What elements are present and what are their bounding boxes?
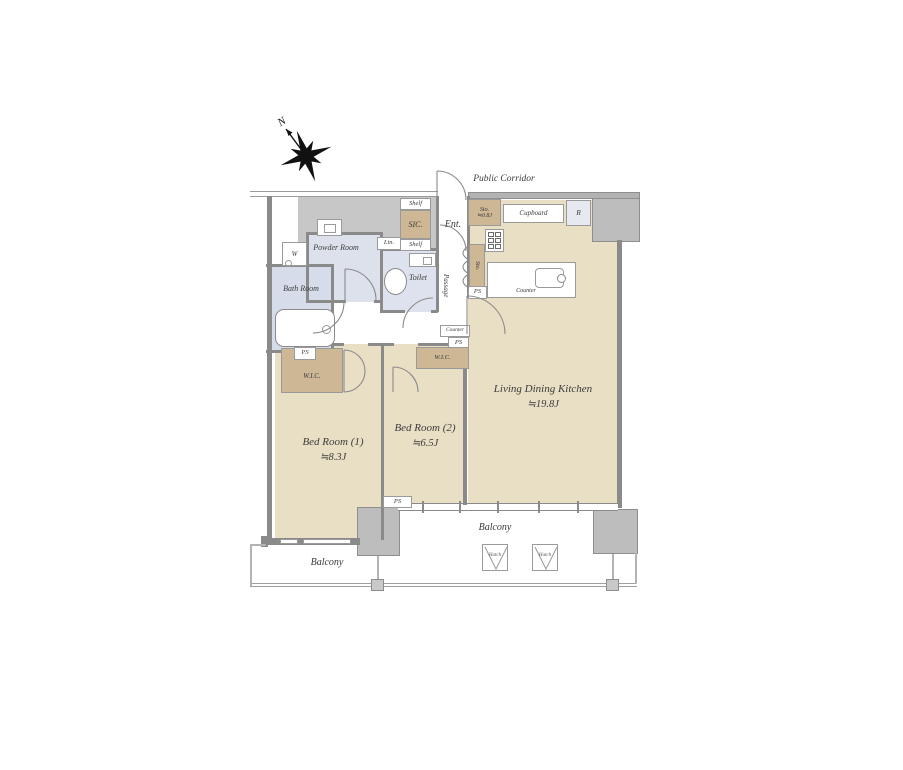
refrigerator-label: R — [576, 209, 581, 217]
bedroom1-name: Bed Room (1) — [283, 436, 383, 449]
linen-box: Lin. — [377, 237, 401, 250]
east-wall — [617, 240, 622, 508]
sto-entry-box: Sto. ≒0.8J — [468, 199, 501, 226]
compass-arrowhead — [286, 129, 293, 136]
stove-icon — [485, 229, 504, 252]
sto-entry-size: ≒0.8J — [477, 213, 492, 219]
entrance-label: Ent. — [437, 219, 469, 231]
bathtub-drain — [322, 325, 331, 334]
stove-burner-cell — [488, 244, 494, 249]
wic2-label: W.I.C. — [434, 355, 450, 362]
evacuation-hatch: Hatch — [482, 544, 508, 571]
west-wall — [267, 196, 272, 544]
rail-connector — [371, 579, 384, 591]
faucet-icon — [557, 274, 566, 283]
corridor-wall — [250, 191, 438, 197]
vanity-unit — [317, 219, 342, 236]
ps-box-kitchen: PS — [468, 286, 487, 299]
balcony-post-line — [612, 554, 614, 582]
wic-bedroom2: W.I.C. — [416, 347, 469, 369]
bedroom1-size: ≒8.3J — [283, 452, 383, 464]
window-mullion — [459, 501, 461, 513]
window-mullion — [497, 501, 499, 513]
ps-label: PS — [474, 289, 481, 296]
cupboard-box: Cupboard — [503, 204, 564, 223]
window-mullion — [422, 501, 424, 513]
balcony-side-line — [250, 544, 252, 586]
ldk-size: ≒19.8J — [468, 399, 618, 411]
ps-label: PS — [455, 340, 462, 347]
bedroom1-window — [303, 539, 351, 544]
passage-label: Passage — [442, 262, 450, 310]
bedroom1-window — [280, 539, 298, 544]
shelf-bottom-label: Shelf — [409, 242, 422, 249]
shelf-bottom-box: Shelf — [400, 239, 431, 251]
vanity-sink — [324, 224, 336, 233]
rail-connector — [606, 579, 619, 591]
passage-west-wall — [436, 196, 439, 312]
balcony-side-line — [635, 553, 637, 584]
cupboard-label: Cupboard — [519, 210, 547, 217]
north-wall-band — [468, 192, 640, 199]
sic-label: SIC. — [409, 221, 423, 229]
powder-room-label: Powder Room — [312, 243, 360, 252]
window-mullion — [577, 501, 579, 513]
balcony-side-line — [250, 544, 266, 546]
hatch-mark — [533, 545, 559, 572]
shelf-top-label: Shelf — [409, 201, 422, 208]
toilet-label: Toilet — [398, 273, 438, 282]
washer-space: W — [282, 242, 307, 266]
counter-small-label: Counter — [446, 328, 464, 334]
compass-rose: N — [266, 108, 346, 188]
stove-burner-cell — [488, 232, 494, 237]
wic1-label: W.I.C. — [303, 373, 320, 380]
hatch-label: Hatch — [533, 553, 557, 558]
column-bottom-right — [593, 509, 638, 554]
public-corridor-label: Public Corridor — [452, 174, 556, 185]
balcony-right-label: Balcony — [470, 522, 520, 534]
counter-small-box: Counter — [440, 325, 470, 337]
stove-burner-cell — [488, 238, 494, 243]
column-top-right — [592, 192, 640, 242]
washer-drain — [285, 260, 292, 267]
refrigerator-space: R — [566, 200, 591, 226]
bedroom2-name: Bed Room (2) — [383, 422, 467, 435]
ps-box-balcony: PS — [383, 496, 412, 508]
stove-burner-cell — [495, 232, 501, 237]
evacuation-hatch: Hatch — [532, 544, 558, 571]
toilet-tank — [409, 253, 436, 267]
hatch-label: Hatch — [483, 553, 507, 558]
balcony-left-label: Balcony — [302, 557, 352, 569]
compass-north-label: N — [275, 115, 289, 130]
toilet-south-wall — [431, 310, 438, 313]
bedroom2-size: ≒6.5J — [383, 438, 467, 450]
hall-south-wall — [368, 343, 394, 346]
ps-label: PS — [394, 499, 401, 506]
stove-burners — [488, 232, 501, 249]
south-window-band — [398, 503, 618, 511]
stove-burner-cell — [495, 238, 501, 243]
ldk-name: Living Dining Kitchen — [468, 383, 618, 396]
toilet-south-wall — [382, 310, 405, 313]
floor-plan: Shelf SIC. Shelf Lin. W Sto. ≒0.8J Cupbo… — [0, 0, 903, 770]
powder-south-wall — [374, 300, 382, 303]
ps-label: PS — [301, 350, 308, 357]
sto-kitchen-box: Sto. — [469, 244, 485, 288]
powder-south-wall — [306, 300, 346, 303]
counter-label: Counter — [506, 288, 546, 295]
column-bottom-middle — [357, 507, 400, 556]
linen-label: Lin. — [384, 240, 394, 247]
balcony-rail — [250, 583, 637, 587]
shelf-top-box: Shelf — [400, 198, 431, 210]
bath-room-label: Bath Room — [283, 284, 319, 293]
window-mullion — [538, 501, 540, 513]
bathtub — [275, 309, 335, 347]
stove-burner-cell — [495, 244, 501, 249]
sic-closet: SIC. — [400, 210, 431, 239]
hatch-mark — [483, 545, 509, 572]
sto-kitchen-label: Sto. — [474, 261, 480, 270]
toilet-flush-button — [423, 257, 432, 265]
washer-label: W — [292, 251, 298, 258]
ps-box-bath: PS — [294, 347, 316, 360]
kitchen-counter: Counter — [487, 262, 576, 298]
